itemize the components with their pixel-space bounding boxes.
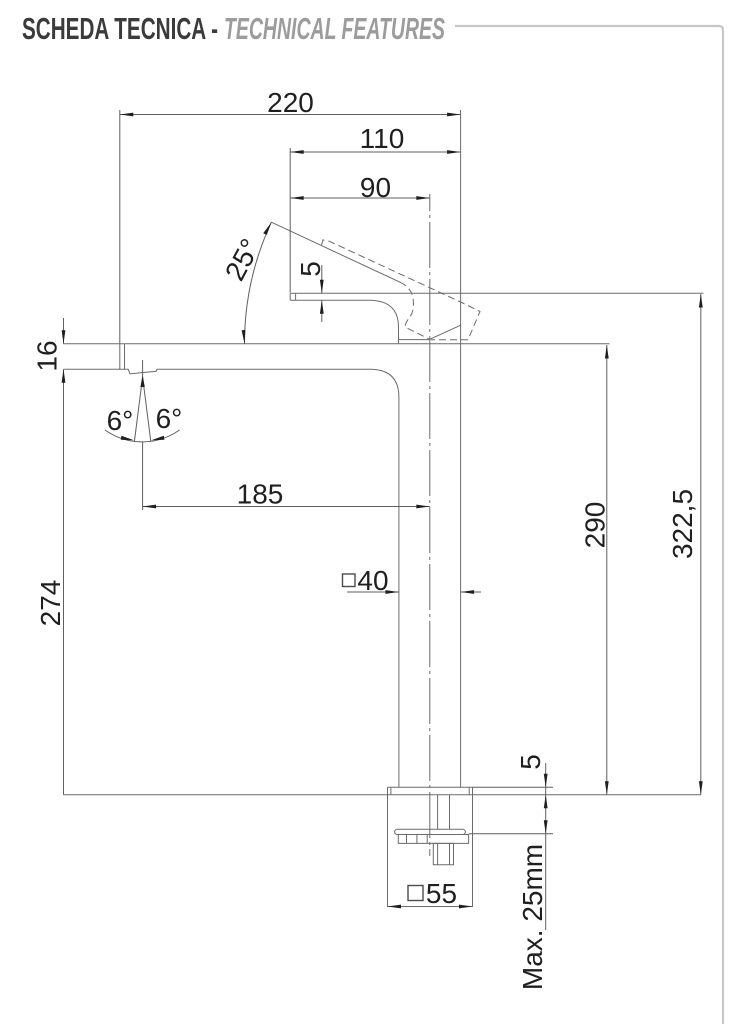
svg-text:290: 290: [580, 502, 611, 549]
svg-text:6°: 6°: [107, 405, 134, 436]
svg-text:6°: 6°: [156, 403, 183, 434]
svg-text:322,5: 322,5: [667, 489, 698, 559]
svg-text:5: 5: [295, 261, 326, 277]
svg-text:185: 185: [237, 479, 284, 510]
svg-text:40: 40: [357, 565, 388, 596]
svg-text:55: 55: [426, 878, 457, 909]
svg-text:274: 274: [35, 580, 66, 627]
svg-text:Max. 25mm: Max. 25mm: [517, 844, 548, 990]
svg-text:90: 90: [360, 172, 391, 203]
svg-text:220: 220: [267, 87, 314, 118]
svg-text:5: 5: [515, 754, 546, 770]
svg-text:110: 110: [360, 123, 405, 154]
svg-text:16: 16: [32, 340, 63, 371]
svg-text:25°: 25°: [219, 234, 266, 286]
